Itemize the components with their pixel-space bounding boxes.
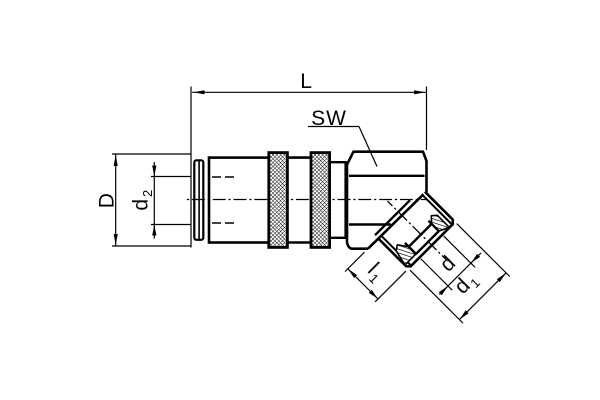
svg-text:L: L [300, 70, 312, 93]
svg-text:D: D [96, 193, 119, 208]
